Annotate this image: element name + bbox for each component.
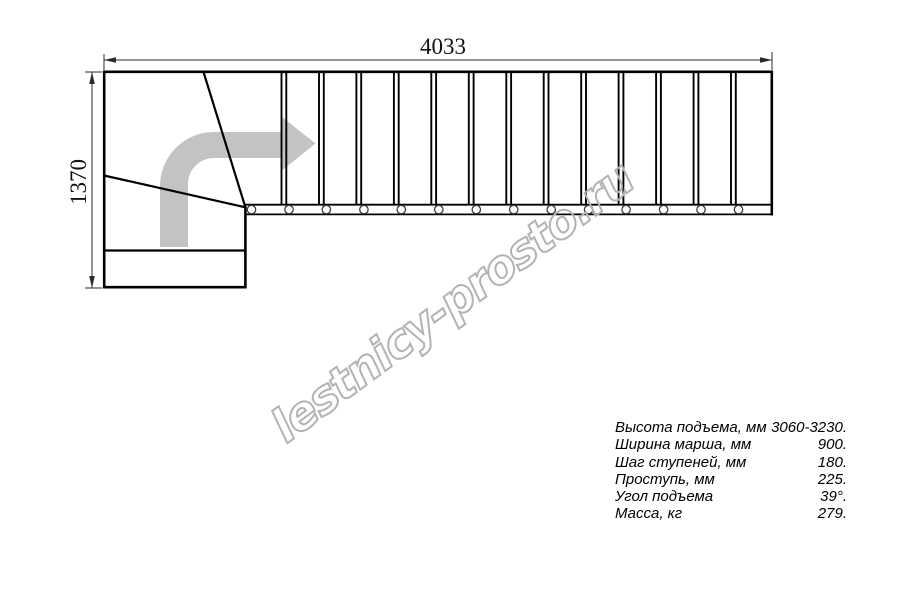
- spec-row: Высота подъема, мм3060-3230.: [615, 419, 847, 436]
- spec-label: Угол подъема: [615, 488, 713, 505]
- spec-value: 3060-3230.: [771, 419, 847, 436]
- spec-label: Высота подъема, мм: [615, 419, 767, 436]
- bolt-circle: [435, 205, 443, 213]
- tread-dividers: [282, 73, 736, 204]
- specs-table: Высота подъема, мм3060-3230.Ширина марша…: [615, 419, 847, 523]
- spec-value: 39°.: [820, 488, 847, 505]
- spec-label: Проступь, мм: [615, 471, 715, 488]
- stair-plan-page: 4033 1370 lestnicy-prosto.ru Высота подъ…: [0, 0, 900, 600]
- spec-value: 180.: [818, 454, 847, 471]
- spec-row: Шаг ступеней, мм180.: [615, 454, 847, 471]
- bolt-circle: [734, 205, 742, 213]
- spec-label: Масса, кг: [615, 505, 682, 522]
- bolt-circle: [360, 205, 368, 213]
- height-dim-label: 1370: [66, 159, 91, 205]
- bolt-circle: [659, 205, 667, 213]
- bolt-circle: [247, 205, 255, 213]
- arrowhead-right: [760, 57, 772, 63]
- width-dim-label: 4033: [420, 34, 466, 59]
- spec-row: Ширина марша, мм900.: [615, 436, 847, 453]
- bolt-circle: [622, 205, 630, 213]
- spec-label: Шаг ступеней, мм: [615, 454, 746, 471]
- bolt-circle: [285, 205, 293, 213]
- bolt-circle: [510, 205, 518, 213]
- arrowhead-left: [104, 57, 116, 63]
- spec-row: Угол подъема39°.: [615, 488, 847, 505]
- arrowhead-up: [89, 72, 95, 84]
- stair-outline: [103, 71, 773, 289]
- bolt-circle: [584, 205, 592, 213]
- spec-label: Ширина марша, мм: [615, 436, 751, 453]
- spec-row: Масса, кг279.: [615, 505, 847, 522]
- spec-value: 225.: [818, 471, 847, 488]
- bolt-circles: [247, 205, 742, 213]
- bolt-circle: [547, 205, 555, 213]
- spec-row: Проступь, мм225.: [615, 471, 847, 488]
- bolt-circle: [697, 205, 705, 213]
- bolt-circle: [397, 205, 405, 213]
- bolt-circle: [472, 205, 480, 213]
- arrowhead-down: [89, 276, 95, 288]
- spec-value: 900.: [818, 436, 847, 453]
- bolt-circle: [322, 205, 330, 213]
- spec-value: 279.: [818, 505, 847, 522]
